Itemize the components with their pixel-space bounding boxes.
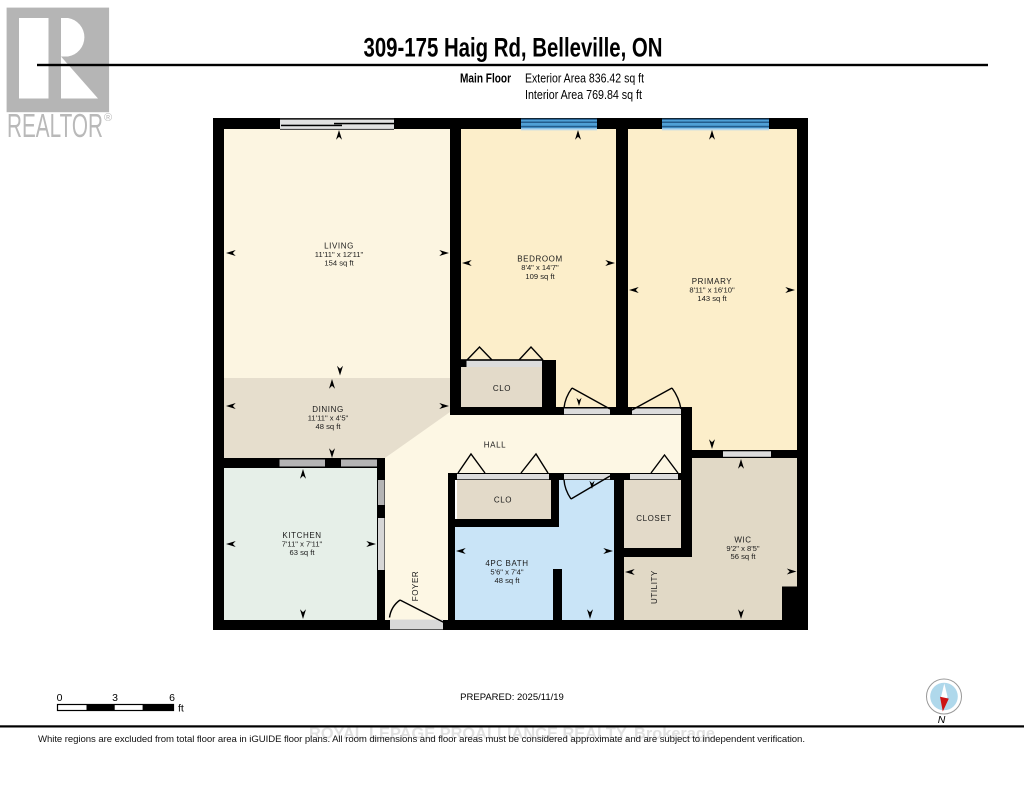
svg-text:ft: ft — [178, 703, 184, 715]
svg-text:Main Floor: Main Floor — [460, 71, 511, 86]
svg-text:CLOSET: CLOSET — [636, 514, 672, 523]
svg-text:N: N — [938, 714, 946, 726]
svg-text:®: ® — [104, 112, 112, 124]
svg-text:PREPARED: 2025/11/19: PREPARED: 2025/11/19 — [460, 692, 564, 703]
svg-text:48 sq ft: 48 sq ft — [495, 576, 521, 585]
svg-text:CLO: CLO — [494, 496, 512, 505]
svg-text:UTILITY: UTILITY — [650, 570, 659, 604]
svg-text:56 sq ft: 56 sq ft — [731, 552, 757, 561]
svg-text:109 sq ft: 109 sq ft — [525, 272, 555, 281]
svg-text:Exterior Area 836.42 sq ft: Exterior Area 836.42 sq ft — [525, 71, 644, 86]
svg-text:REALTOR: REALTOR — [7, 107, 103, 144]
svg-text:3: 3 — [112, 692, 118, 704]
svg-text:CLO: CLO — [493, 384, 511, 393]
svg-text:HALL: HALL — [484, 441, 506, 450]
svg-text:309-175 Haig Rd, Belleville, O: 309-175 Haig Rd, Belleville, ON — [364, 33, 663, 63]
svg-text:48 sq ft: 48 sq ft — [316, 422, 342, 431]
svg-text:FOYER: FOYER — [411, 571, 420, 602]
svg-text:6: 6 — [169, 692, 175, 704]
svg-text:63 sq ft: 63 sq ft — [290, 548, 316, 557]
svg-text:8'4" x 14'7": 8'4" x 14'7" — [521, 263, 559, 272]
svg-text:White regions are excluded fro: White regions are excluded from total fl… — [38, 734, 805, 745]
svg-text:0: 0 — [57, 692, 63, 704]
svg-text:154 sq ft: 154 sq ft — [324, 259, 354, 268]
svg-text:Interior Area 769.84 sq ft: Interior Area 769.84 sq ft — [525, 87, 642, 102]
svg-text:143 sq ft: 143 sq ft — [697, 294, 727, 303]
